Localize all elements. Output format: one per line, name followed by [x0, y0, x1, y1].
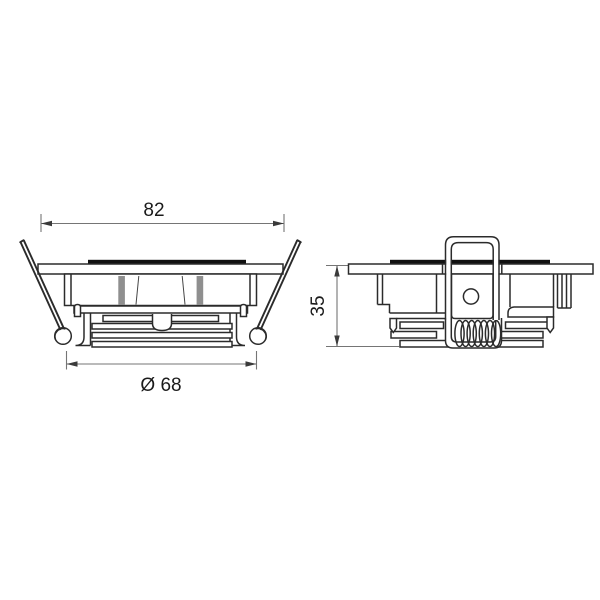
front-body-rib-left	[118, 276, 125, 305]
dim-68: Ø 68	[67, 351, 257, 396]
side-ledge-left	[390, 313, 446, 319]
mounting-pin-left	[390, 319, 397, 333]
dim-68-arrow-left	[67, 361, 78, 366]
spring-arm-left-inner	[24, 240, 64, 328]
dim-82: 82	[41, 200, 284, 232]
heatsink-brick	[499, 332, 544, 339]
dim-35-label: 35	[308, 295, 329, 316]
spring-arm-right-outer	[261, 242, 301, 330]
downlight-technical-drawing: 82	[0, 0, 600, 600]
heatsink-fin	[92, 333, 232, 339]
side-view: 35	[308, 237, 593, 348]
spring-clip-left	[20, 240, 71, 344]
bracket-leg-right-fill	[494, 256, 499, 320]
front-body	[65, 274, 257, 306]
spring-arm-right-tip	[297, 240, 300, 242]
side-flange	[349, 264, 594, 274]
front-body-rib-right	[197, 276, 204, 305]
dim-35: 35	[308, 266, 399, 347]
bracket-leg-left-fill	[446, 256, 451, 320]
dim-82-arrow-left	[41, 221, 52, 226]
ribbed-connector	[558, 274, 572, 308]
technical-drawing-page: 82	[0, 0, 600, 600]
front-ledge-tab-left	[75, 305, 81, 317]
dim-82-label: 82	[143, 200, 164, 221]
heatsink-column-left	[76, 313, 91, 346]
front-view: 82	[20, 200, 301, 396]
front-ledge-tab-right	[241, 305, 247, 317]
dim-82-arrow-right	[273, 221, 284, 226]
spring-clip-right	[250, 240, 301, 344]
heatsink-brick	[506, 322, 550, 329]
side-ledge-right	[508, 307, 554, 317]
heatsink-brick	[400, 322, 444, 329]
spring-arm-left-tip	[20, 240, 23, 242]
dim-68-arrow-right	[246, 361, 257, 366]
heatsink-brick	[391, 332, 437, 339]
side-step-left	[378, 305, 390, 314]
side-body-left	[378, 274, 446, 319]
front-body-outline	[65, 274, 257, 306]
front-ledge-bar	[74, 306, 248, 313]
front-flange	[38, 264, 283, 274]
front-heatsink	[76, 313, 246, 347]
side-body-right	[508, 274, 571, 317]
dim-35-arrow-top	[334, 266, 339, 277]
heatsink-fin	[92, 342, 232, 348]
mounting-pin-right	[547, 317, 554, 333]
dim-68-label: Ø 68	[140, 375, 181, 396]
bracket-plate	[452, 274, 494, 319]
dim-35-arrow-bottom	[334, 336, 339, 347]
spring-arm-right-inner	[257, 240, 297, 328]
spring-arm-left-outer	[21, 242, 61, 330]
fin-notch	[153, 314, 172, 331]
